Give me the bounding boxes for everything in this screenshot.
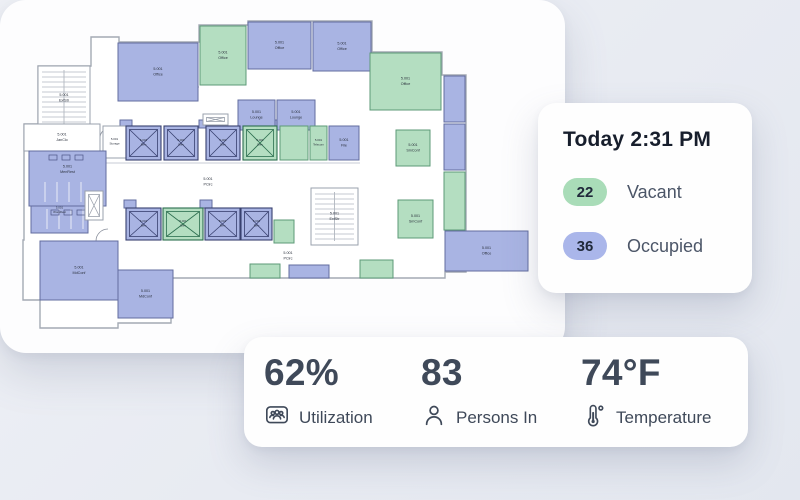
room-floor-code: 5.001 — [283, 251, 292, 255]
room-area — [444, 172, 465, 230]
vacant-row[interactable]: 22 Vacant — [563, 178, 728, 206]
room-name: Office — [275, 46, 285, 50]
room-name: Elev — [178, 143, 184, 147]
room-name: Elev — [180, 224, 186, 228]
room-elev[interactable]: 5.001Elev — [126, 208, 161, 240]
room-floor-code: 5.001 — [275, 41, 284, 45]
person-icon — [421, 402, 447, 433]
vacant-label: Vacant — [627, 182, 682, 203]
floor-plan: 5.001Office5.001Office5.001Office5.001Of… — [0, 0, 565, 353]
room-floor-code: 5.001 — [408, 143, 417, 147]
room-area — [274, 220, 294, 243]
room-name: Elev — [220, 143, 226, 147]
room-floor-code: 5.001 — [177, 138, 185, 142]
people-badge-icon — [264, 402, 290, 433]
room-extstr[interactable]: 5.001ExtStr — [38, 66, 90, 130]
room-floor-code: 5.001 — [339, 138, 348, 142]
room-floor-code: 5.001 — [179, 219, 187, 223]
occupied-count-badge: 36 — [563, 232, 607, 260]
room-area — [124, 200, 136, 208]
room-area — [200, 200, 212, 208]
room-elev[interactable]: 5.001Elev — [163, 208, 203, 240]
room-floor-code: 5.001 — [57, 133, 66, 137]
room-floor-code: 5.001 — [140, 138, 148, 142]
room-floor-code: 5.001 — [256, 138, 264, 142]
room-name: Lounge — [290, 115, 302, 119]
room-area — [289, 265, 329, 278]
room-floor-code: 5.001 — [291, 110, 300, 114]
room-name: Office — [218, 56, 228, 60]
room-elev[interactable]: 5.001Elev — [206, 126, 240, 160]
room-name: SmConf — [409, 219, 423, 223]
room-area — [444, 76, 465, 122]
room-name: MenRest — [60, 170, 75, 174]
room-name: Elev — [141, 143, 147, 147]
room-name: Elev — [254, 224, 260, 228]
room-floor-code: 5.001 — [482, 246, 491, 250]
persons-in-metric: 83 Persons In — [421, 352, 581, 447]
room-floor-code: 5.001 — [401, 77, 410, 81]
room-name: File — [341, 143, 347, 147]
room-extstr[interactable]: 5.001ExtStr — [311, 188, 358, 245]
room-floor-code: 5.001 — [337, 42, 346, 46]
shaft — [85, 191, 103, 220]
room-name: Office — [337, 47, 347, 51]
room-name: MdConf — [73, 271, 87, 275]
occupied-label: Occupied — [627, 236, 703, 257]
temperature-label: Temperature — [616, 408, 711, 428]
room-smconf[interactable]: 5.001SmConf — [396, 130, 430, 166]
room-office[interactable]: 5.001Office — [118, 43, 198, 101]
room-floor-code: 5.001 — [219, 219, 227, 223]
room-area — [444, 124, 465, 170]
room-floor-code: 5.001 — [140, 219, 148, 223]
room-office[interactable]: 5.001Office — [445, 231, 528, 271]
persons-in-label: Persons In — [456, 408, 537, 428]
shaft — [203, 114, 228, 125]
room-elev[interactable]: 5.001Elev — [164, 126, 198, 160]
room-mdconf[interactable]: 5.001MdConf — [118, 270, 173, 318]
room-office[interactable]: 5.001Office — [200, 26, 246, 85]
room-floor-code: 5.001 — [253, 219, 261, 223]
room-name: SmConf — [406, 148, 420, 152]
status-card-title: Today 2:31 PM — [563, 128, 728, 152]
room-floor-code: 5.001 — [252, 110, 261, 114]
metrics-card: 62% Utilization 83 — [244, 337, 748, 447]
room-area — [280, 126, 308, 160]
room-name: Office — [153, 72, 163, 76]
room-name: ExtStr — [329, 217, 340, 221]
room-elev[interactable]: 5.001Elev — [241, 208, 272, 240]
room-office[interactable]: 5.001Office — [248, 22, 311, 69]
room-area — [250, 264, 280, 278]
temperature-metric: 74°F Temperature — [581, 352, 738, 447]
room-area — [360, 260, 393, 278]
room-office[interactable]: 5.001Office — [313, 22, 371, 71]
room-name: Office — [401, 82, 411, 86]
circulation-label: 5.001PCirc — [203, 177, 212, 186]
room-janclo[interactable]: 5.001JanClo — [24, 124, 100, 151]
room-floor-code: 5.001 — [411, 214, 420, 218]
room-telecom[interactable]: 5.001Telecom — [310, 126, 327, 160]
room-name: Storage — [109, 142, 120, 146]
room-floor-code: 5.001 — [315, 138, 323, 142]
room-name: Elev — [257, 143, 263, 147]
room-floor-code: 5.001 — [203, 177, 212, 181]
temperature-value: 74°F — [581, 352, 738, 394]
room-office[interactable]: 5.001Office — [370, 53, 441, 110]
room-elev[interactable]: 5.001Elev — [126, 126, 161, 160]
room-floor-code: 5.001 — [218, 51, 227, 55]
status-card: Today 2:31 PM 22 Vacant 36 Occupied — [538, 103, 752, 293]
room-name: Telecom — [313, 143, 324, 147]
room-floor-code: 5.001 — [59, 93, 68, 97]
room-floor-code: 5.001 — [111, 137, 119, 141]
room-name: WomRest — [53, 210, 66, 214]
room-womrest[interactable]: 5.001WomRest — [31, 206, 88, 234]
thermometer-icon — [581, 402, 607, 433]
room-elev[interactable]: 5.001Elev — [205, 208, 240, 240]
room-elev[interactable]: 5.001Elev — [243, 126, 277, 160]
room-file[interactable]: 5.001File — [329, 126, 359, 160]
room-name: Office — [482, 251, 492, 255]
utilization-value: 62% — [264, 352, 421, 394]
utilization-metric: 62% Utilization — [264, 352, 421, 447]
room-name: Lounge — [250, 115, 262, 119]
circulation-label: 5.001PCirc — [283, 251, 292, 260]
room-name: PCirc — [283, 256, 292, 260]
room-name: ExtStr — [59, 98, 70, 102]
room-name: Elev — [141, 224, 147, 228]
room-smconf[interactable]: 5.001SmConf — [398, 200, 433, 238]
floor-plan-card: 5.001Office5.001Office5.001Office5.001Of… — [0, 0, 565, 353]
room-floor-code: 5.001 — [219, 138, 227, 142]
utilization-label: Utilization — [299, 408, 373, 428]
room-floor-code: 5.001 — [141, 289, 150, 293]
room-floor-code: 5.001 — [330, 212, 339, 216]
room-floor-code: 5.001 — [74, 266, 83, 270]
vacant-count-badge: 22 — [563, 178, 607, 206]
room-floor-code: 5.001 — [63, 165, 72, 169]
occupied-row[interactable]: 36 Occupied — [563, 232, 728, 260]
room-mdconf[interactable]: 5.001MdConf — [40, 241, 118, 300]
room-floor-code: 5.001 — [153, 67, 162, 71]
room-name: Elev — [220, 224, 226, 228]
room-name: JanClo — [56, 138, 67, 142]
room-name: MdConf — [139, 294, 153, 298]
room-name: PCirc — [203, 182, 212, 186]
room-floor-code: 5.001 — [56, 206, 64, 210]
persons-in-value: 83 — [421, 352, 581, 394]
